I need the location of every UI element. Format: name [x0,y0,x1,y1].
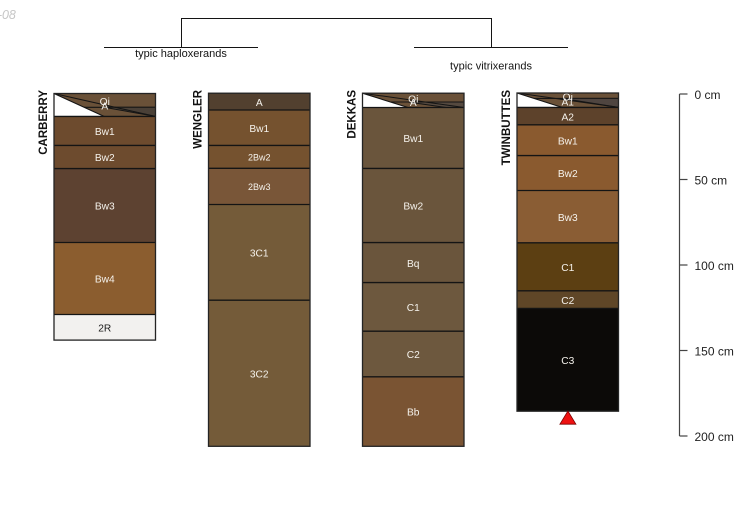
svg-text:-08: -08 [0,8,16,22]
svg-text:A1: A1 [562,97,575,108]
svg-text:C2: C2 [561,296,574,307]
svg-text:3C2: 3C2 [250,369,269,380]
svg-text:TWINBUTTES: TWINBUTTES [501,90,513,166]
svg-text:100 cm: 100 cm [695,259,734,273]
svg-text:WENGLER: WENGLER [193,89,205,148]
svg-text:200 cm: 200 cm [695,430,734,444]
svg-text:Bw2: Bw2 [558,169,578,180]
svg-text:2R: 2R [98,324,111,335]
svg-text:typic vitrixerands: typic vitrixerands [450,61,532,73]
svg-text:DEKKAS: DEKKAS [347,90,359,139]
svg-text:Bw1: Bw1 [249,124,269,135]
svg-text:typic haploxerands: typic haploxerands [135,48,227,60]
svg-text:Bq: Bq [407,259,420,270]
svg-text:50 cm: 50 cm [695,173,728,187]
svg-text:Bw1: Bw1 [403,134,423,145]
svg-text:Bw3: Bw3 [95,202,115,213]
svg-text:2Bw3: 2Bw3 [248,182,271,192]
svg-text:A: A [410,98,417,109]
svg-text:A: A [101,102,108,113]
svg-text:CARBERRY: CARBERRY [38,90,50,155]
svg-text:Bw1: Bw1 [95,127,115,138]
svg-text:Bw2: Bw2 [95,153,115,164]
svg-text:A2: A2 [562,112,575,123]
svg-text:A: A [256,98,263,109]
svg-text:C1: C1 [561,263,574,274]
svg-text:3C1: 3C1 [250,249,269,260]
svg-text:2Bw2: 2Bw2 [248,153,271,163]
svg-text:Bw1: Bw1 [558,136,578,147]
svg-text:150 cm: 150 cm [695,344,734,358]
svg-text:Bw4: Bw4 [95,275,115,286]
svg-text:Bb: Bb [407,408,420,419]
svg-text:Bw2: Bw2 [403,202,423,213]
svg-text:0 cm: 0 cm [695,88,721,102]
svg-text:C1: C1 [407,303,420,314]
svg-text:C2: C2 [407,350,420,361]
svg-text:C3: C3 [561,356,574,367]
svg-text:Bw3: Bw3 [558,213,578,224]
